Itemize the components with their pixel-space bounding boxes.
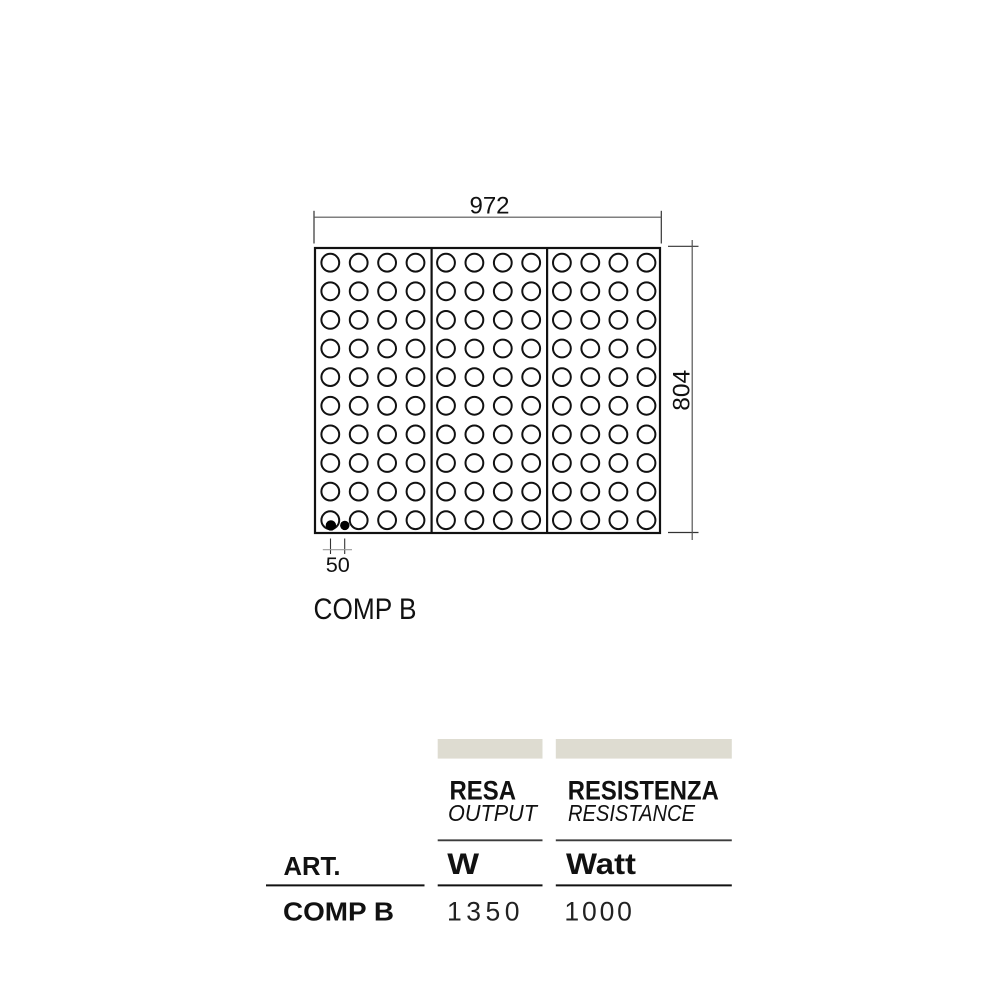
svg-text:ART.: ART. — [284, 853, 341, 881]
svg-text:804: 804 — [668, 370, 695, 411]
svg-text:972: 972 — [469, 193, 509, 220]
svg-text:W: W — [447, 848, 479, 881]
svg-text:RESISTANCE: RESISTANCE — [568, 800, 695, 826]
svg-text:COMP B: COMP B — [283, 899, 394, 927]
svg-text:1000: 1000 — [564, 897, 632, 927]
svg-text:Watt: Watt — [566, 848, 636, 881]
svg-text:1350: 1350 — [447, 897, 520, 927]
svg-text:OUTPUT: OUTPUT — [448, 800, 539, 826]
svg-text:COMP B: COMP B — [314, 593, 417, 626]
svg-text:50: 50 — [326, 552, 350, 577]
